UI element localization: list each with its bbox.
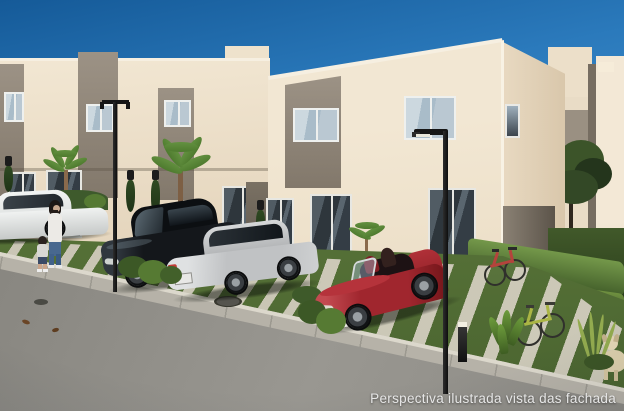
red-bicycle [484, 238, 524, 284]
cardigan [48, 213, 62, 243]
caption: Perspectiva ilustrada vista das fachada [370, 391, 616, 406]
ground-floor-shadow-line [0, 168, 270, 171]
wall-sconce [5, 156, 12, 166]
far-right-parapet [598, 62, 614, 72]
upstairs-window [293, 108, 339, 142]
shrub-cluster [316, 308, 346, 334]
leafy-plant [490, 308, 526, 360]
tall-grass [578, 312, 618, 372]
sconce-vine [4, 166, 13, 192]
bollard-light [458, 322, 467, 362]
left-townhouse-roofline [0, 58, 270, 61]
wall-sconce [257, 200, 264, 210]
shrub-cluster [160, 266, 182, 284]
architectural-rendering: Perspectiva ilustrada vista das fachada [0, 0, 624, 411]
street-lamp-right [412, 126, 452, 394]
side-slit-window [505, 104, 520, 138]
upstairs-window [164, 100, 191, 127]
child-pedestrian [36, 236, 50, 272]
upstairs-window [4, 92, 24, 122]
street-lamp-left [100, 98, 132, 292]
drain [34, 299, 48, 305]
